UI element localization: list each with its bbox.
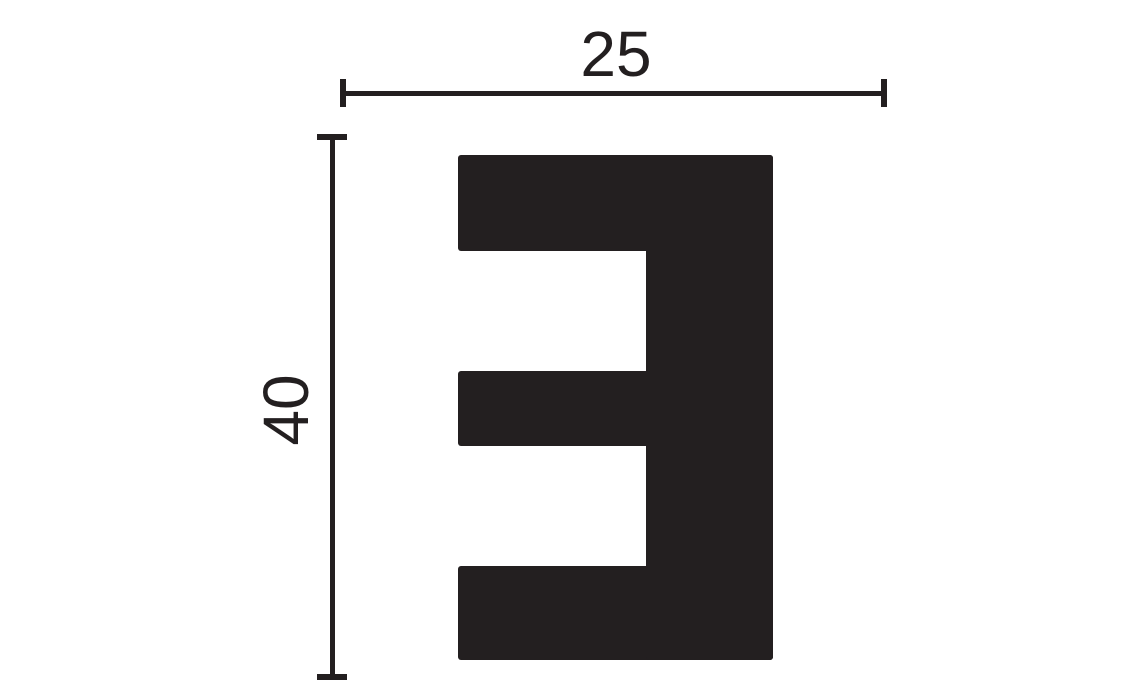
profile-spine bbox=[646, 155, 773, 660]
profile-shape bbox=[458, 155, 773, 660]
width-dimension-label: 25 bbox=[540, 22, 692, 86]
height-dimension-line bbox=[330, 137, 335, 677]
width-dimension-tick-left bbox=[340, 79, 346, 107]
width-dimension-tick-right bbox=[881, 79, 887, 107]
profile-middle-flange bbox=[458, 371, 658, 446]
height-dimension-tick-top bbox=[317, 134, 347, 140]
height-dimension-tick-bottom bbox=[317, 674, 347, 680]
diagram-canvas: 25 40 bbox=[0, 0, 1128, 684]
width-dimension-line bbox=[343, 91, 887, 96]
height-dimension-label: 40 bbox=[251, 334, 321, 486]
